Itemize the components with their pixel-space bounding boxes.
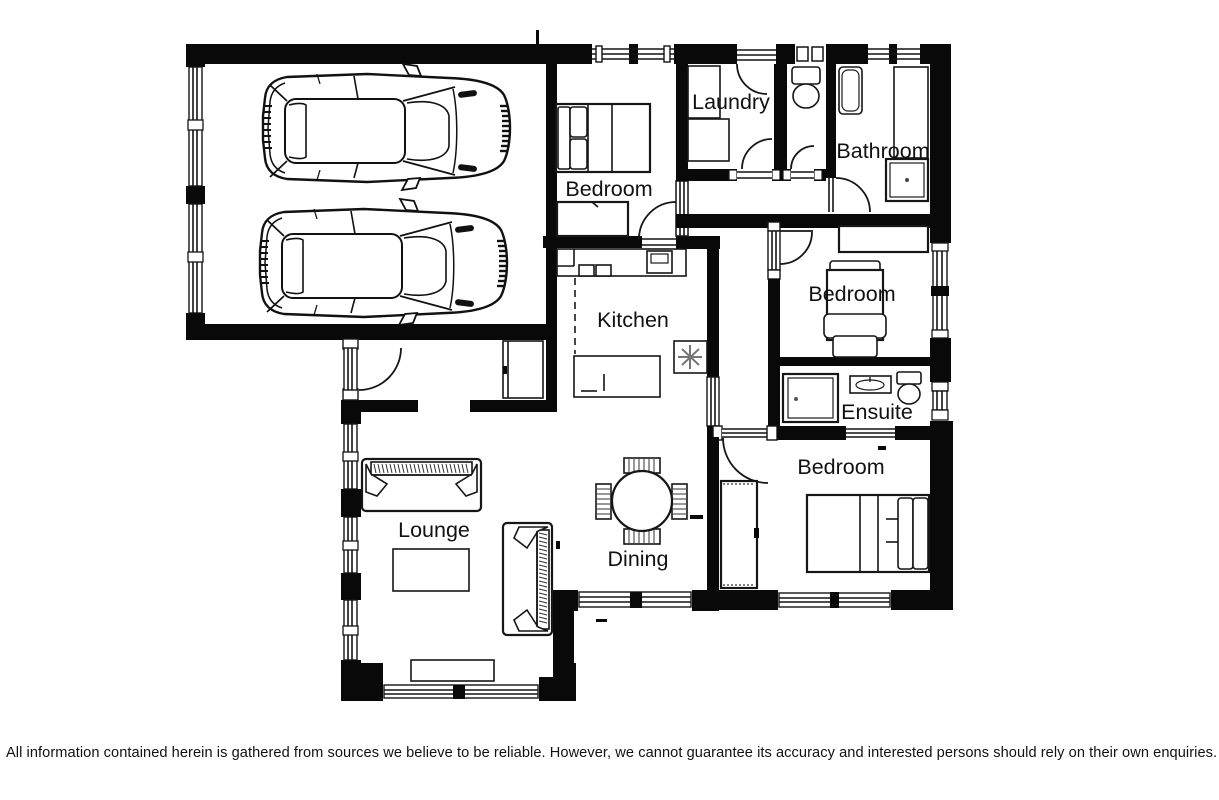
svg-text:Kitchen: Kitchen [597, 308, 669, 332]
svg-text:Ensuite: Ensuite [841, 400, 913, 424]
svg-text:Bedroom: Bedroom [565, 177, 652, 201]
svg-text:Lounge: Lounge [398, 518, 470, 542]
svg-text:Bathroom: Bathroom [836, 139, 929, 163]
svg-text:Laundry: Laundry [692, 90, 770, 114]
svg-text:Dining: Dining [608, 547, 669, 571]
svg-text:All information contained here: All information contained herein is gath… [6, 745, 1217, 761]
svg-text:Bedroom: Bedroom [808, 282, 895, 306]
svg-text:Bedroom: Bedroom [797, 455, 884, 479]
